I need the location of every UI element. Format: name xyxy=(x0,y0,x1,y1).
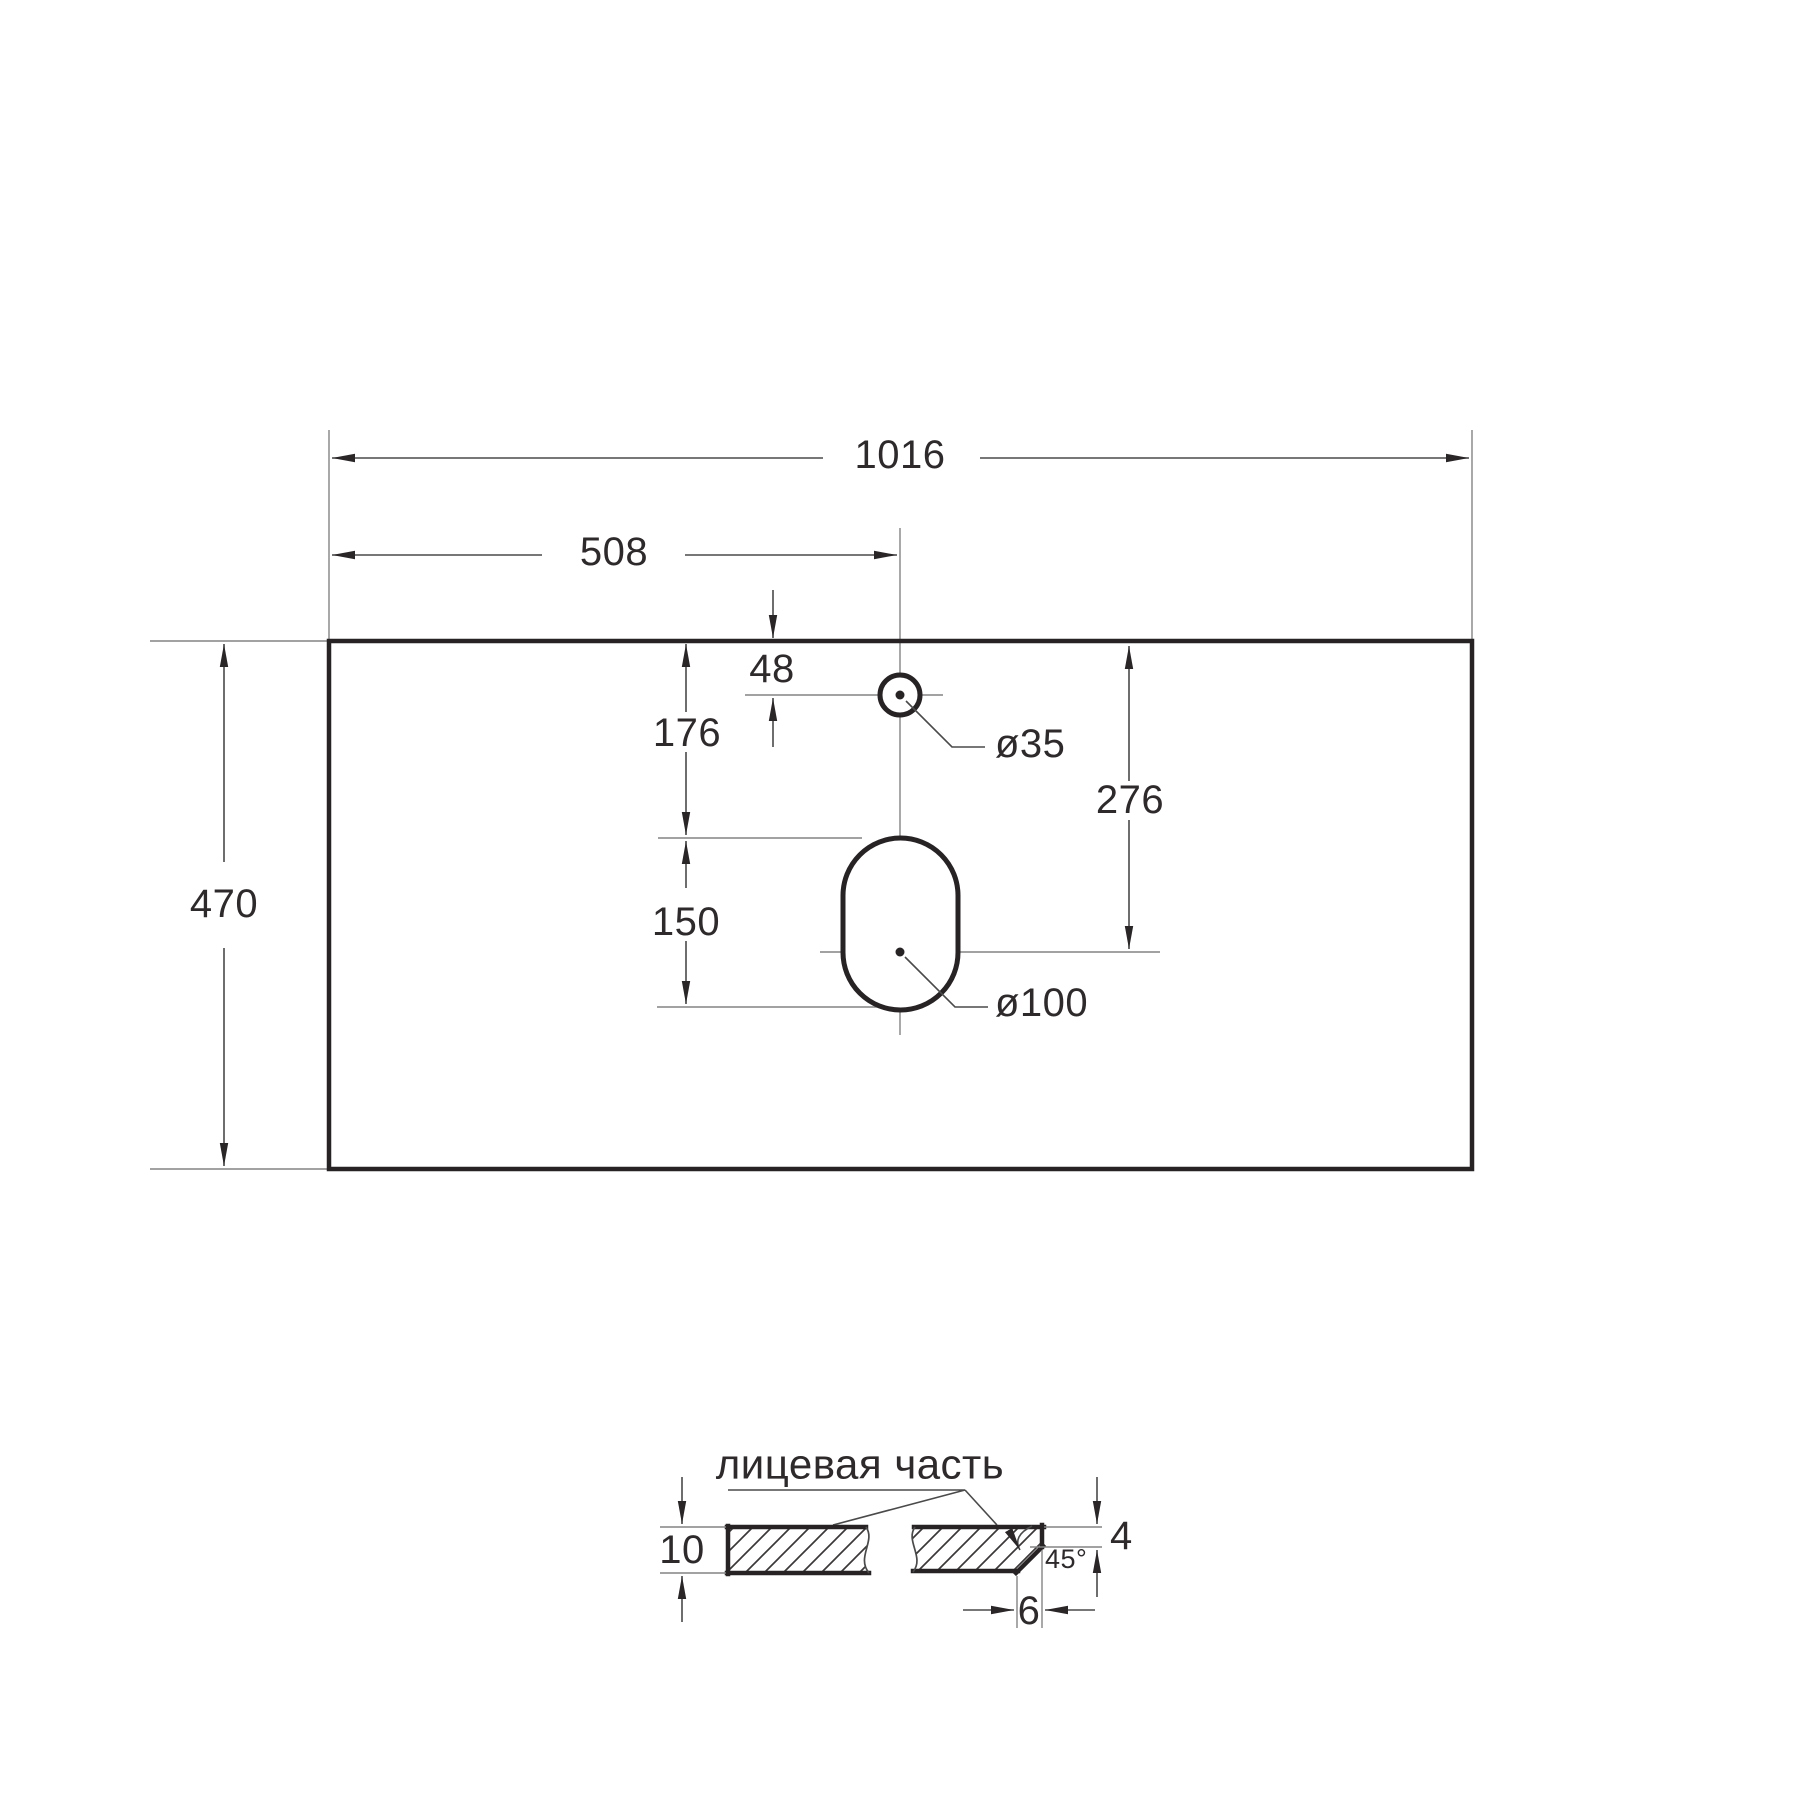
chamfer-height-label: 4 xyxy=(1110,1514,1133,1558)
countertop-drawing-page: 1016 508 470 48 176 150 276 ø35 xyxy=(0,0,1800,1800)
dim-overall-width: 1016 xyxy=(332,433,1469,477)
thickness-label: 10 xyxy=(659,1528,705,1572)
faucet-to-slot-label: 176 xyxy=(653,711,721,755)
section-face-label: лицевая часть xyxy=(716,1441,1004,1488)
technical-drawing: 1016 508 470 48 176 150 276 ø35 xyxy=(0,0,1800,1800)
center-offset-label: 508 xyxy=(580,530,648,574)
dim-chamfer-height: 4 xyxy=(1030,1477,1133,1597)
faucet-dia-label: ø35 xyxy=(995,722,1065,766)
extension-lines xyxy=(150,430,1472,1169)
chamfer-angle-label: 45° xyxy=(1045,1544,1087,1574)
section-bar-left xyxy=(727,1526,869,1574)
section-face-callout: лицевая часть xyxy=(716,1441,1004,1526)
drain-dia-label: ø100 xyxy=(995,981,1088,1025)
dim-depth: 470 xyxy=(190,644,258,1166)
dim-thickness: 10 xyxy=(659,1477,726,1622)
slot-length-label: 150 xyxy=(652,900,720,944)
depth-label: 470 xyxy=(190,882,258,926)
dim-faucet-to-slot: 176 xyxy=(653,644,721,835)
faucet-from-edge-label: 48 xyxy=(749,647,795,691)
overall-width-label: 1016 xyxy=(855,433,946,477)
drain-from-edge-label: 276 xyxy=(1096,778,1164,822)
section-bar-right xyxy=(912,1525,1044,1573)
dim-drain-from-edge: 276 xyxy=(1096,646,1164,949)
dim-slot-length: 150 xyxy=(652,841,720,1004)
faucet-dia-callout: ø35 xyxy=(906,701,1065,766)
dim-faucet-from-edge: 48 xyxy=(749,590,795,747)
chamfer-width-label: 6 xyxy=(1018,1589,1041,1633)
dim-center-offset: 508 xyxy=(332,530,897,574)
drain-slot xyxy=(843,838,958,1010)
